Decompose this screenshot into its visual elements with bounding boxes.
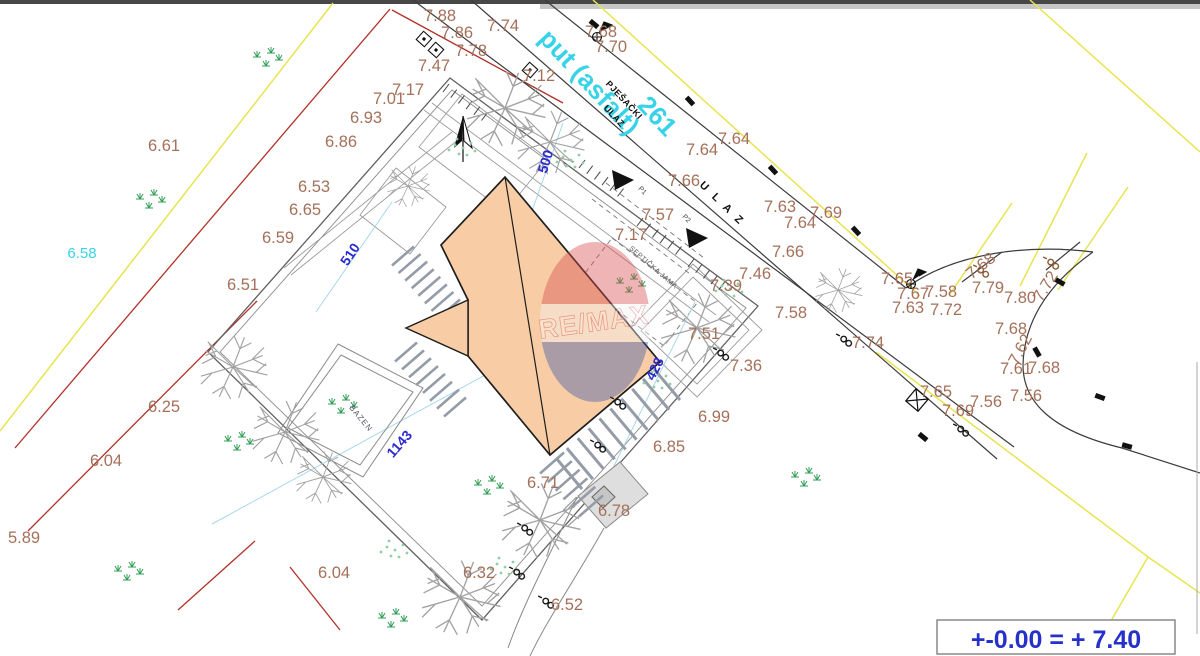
tree-icon — [253, 401, 320, 464]
grass-tuft-icon — [805, 467, 813, 473]
map-label: 6.85 — [653, 438, 685, 456]
shrub-dot-icon — [512, 561, 515, 564]
shaft-box-icon — [416, 31, 432, 47]
map-label: 7.56 — [970, 393, 1002, 411]
map-label: 7.66 — [668, 172, 700, 190]
grass-tuft-icon — [328, 398, 336, 404]
grass-tuft-icon — [238, 431, 246, 437]
map-label: 7.64 — [784, 214, 816, 232]
grass-tuft-icon — [136, 193, 144, 199]
map-label: 7.74 — [487, 17, 519, 35]
grass-tuft-icon — [800, 480, 808, 486]
map-label: 6.53 — [298, 178, 330, 196]
utility-pole-icon — [835, 331, 853, 347]
map-label: 6.71 — [527, 474, 559, 492]
map-label: 6.65 — [289, 201, 321, 219]
grass-tuft-icon — [114, 565, 122, 571]
shrub-dot-icon — [454, 144, 457, 147]
culvert-marker-icon — [918, 432, 929, 442]
shrub-dot-icon — [643, 382, 646, 385]
map-label: 7.51 — [688, 325, 720, 343]
map-label: 6.04 — [318, 564, 350, 582]
shrub-dot-icon — [380, 551, 383, 554]
shrub-dot-icon — [448, 149, 451, 152]
map-label: 7.63 — [892, 299, 924, 317]
map-label: 7.79 — [972, 279, 1004, 297]
map-label: 6.86 — [325, 133, 357, 151]
map-label: 7.74 — [852, 334, 884, 352]
shrub-dot-icon — [661, 387, 664, 390]
map-label: 6.25 — [148, 398, 180, 416]
map-label: 7.12 — [523, 67, 555, 85]
map-label: P1 — [637, 185, 648, 196]
grass-tuft-icon — [158, 196, 166, 202]
grass-tuft-icon — [262, 60, 270, 66]
shrub-dot-icon — [462, 147, 465, 150]
map-label: 5.89 — [8, 529, 40, 547]
grass-tuft-icon — [488, 475, 496, 481]
shrub-dot-icon — [500, 572, 503, 575]
culvert-marker-icon — [1032, 346, 1041, 357]
grass-tuft-icon — [224, 435, 232, 441]
map-label: 6.04 — [90, 452, 122, 470]
map-label: 7.57 — [642, 206, 674, 224]
shrub-dot-icon — [398, 556, 401, 559]
fence-tick — [579, 160, 585, 168]
shrub-dot-icon — [564, 150, 567, 153]
grass-tuft-icon — [474, 479, 482, 485]
shrub-dot-icon — [388, 540, 391, 543]
grass-tuft-icon — [392, 608, 400, 614]
map-label: 7.86 — [441, 24, 473, 42]
map-label: 7.36 — [730, 357, 762, 375]
map-label: 7.64 — [718, 130, 750, 148]
map-label: 510 — [337, 240, 363, 268]
shrub-dot-icon — [562, 156, 565, 159]
grass-tuft-icon — [233, 444, 241, 450]
shrub-dot-icon — [402, 544, 405, 547]
grass-tuft-icon — [145, 202, 153, 208]
map-label: 6.59 — [262, 229, 294, 247]
shrub-dot-icon — [386, 546, 389, 549]
shrub-dot-icon — [406, 552, 409, 555]
shrub-dot-icon — [474, 150, 477, 153]
fence-tick — [587, 166, 593, 174]
shrub-dot-icon — [394, 549, 397, 552]
map-label: 6.32 — [463, 564, 495, 582]
map-label: 7.72 — [1030, 268, 1062, 305]
culvert-marker-icon — [1094, 393, 1105, 401]
grass-tuft-icon — [253, 51, 261, 57]
shrub-dot-icon — [508, 573, 511, 576]
culvert-marker-icon — [685, 96, 695, 107]
map-label: 7.64 — [686, 141, 718, 159]
map-label: 7.46 — [739, 265, 771, 283]
shrub-dot-icon — [665, 375, 668, 378]
fence-tick — [594, 171, 600, 179]
utility-pole-icon — [1042, 254, 1060, 270]
tree-icon — [201, 336, 268, 399]
shrub-dot-icon — [496, 563, 499, 566]
level-note-box: +-0.00 = + 7.40 — [937, 620, 1175, 654]
site-plan: 7.887.867.787.747.477.177.016.936.866.61… — [0, 0, 1200, 656]
grass-tuft-icon — [128, 561, 136, 567]
map-label: BAZEN — [347, 403, 374, 433]
shrub-dot-icon — [470, 142, 473, 145]
map-label: 7.65 — [920, 383, 952, 401]
grass-tuft-icon — [246, 438, 254, 444]
grass-tuft-icon — [337, 407, 345, 413]
map-label: 7.56 — [1010, 387, 1042, 405]
shrub-dot-icon — [574, 166, 577, 169]
grass-tuft-icon — [136, 568, 144, 574]
map-label: 7.58 — [775, 304, 807, 322]
shrub-dot-icon — [653, 386, 656, 389]
map-label: 7.68 — [1028, 359, 1060, 377]
map-label: 7.78 — [455, 42, 487, 60]
level-note-text: +-0.00 = + 7.40 — [971, 626, 1141, 654]
shrub-dot-icon — [570, 159, 573, 162]
shrub-dot-icon — [456, 138, 459, 141]
grass-tuft-icon — [387, 621, 395, 627]
map-label: 500 — [534, 148, 556, 175]
shrub-dot-icon — [458, 153, 461, 156]
shrub-dot-icon — [733, 295, 736, 298]
map-label: 7.01 — [373, 90, 405, 108]
tree-icon — [387, 166, 430, 207]
grass-tuft-icon — [496, 482, 504, 488]
utility-pole-icon — [952, 421, 970, 437]
grass-tuft-icon — [378, 612, 386, 618]
shrub-dot-icon — [669, 383, 672, 386]
map-label: 7.72 — [930, 301, 962, 319]
map-label: 6.52 — [551, 596, 583, 614]
grass-tuft-icon — [342, 394, 350, 400]
map-label: 6.93 — [350, 109, 382, 127]
map-label: P2 — [681, 213, 692, 224]
grass-tuft-icon — [483, 488, 491, 494]
map-label: 1143 — [383, 427, 415, 461]
map-label: 6.58 — [67, 245, 96, 262]
grass-tuft-icon — [791, 471, 799, 477]
shrub-dot-icon — [556, 161, 559, 164]
map-label: 7.69 — [942, 402, 974, 420]
shrub-dot-icon — [504, 566, 507, 569]
site-plan-canvas: 7.887.867.787.747.477.177.016.936.866.61… — [0, 0, 1200, 656]
shrub-dot-icon — [466, 154, 469, 157]
map-label: 7.88 — [424, 7, 456, 25]
tree-icon — [297, 451, 352, 503]
shrub-dot-icon — [566, 165, 569, 168]
map-label: 6.78 — [598, 502, 630, 520]
map-label: 7.70 — [595, 38, 627, 56]
map-label: 6.99 — [698, 408, 730, 426]
grass-tuft-icon — [123, 574, 131, 580]
grass-tuft-icon — [813, 474, 821, 480]
grass-tuft-icon — [150, 189, 158, 195]
grass-tuft-icon — [267, 47, 275, 53]
map-label: 7.17 — [615, 226, 647, 244]
shrub-dot-icon — [578, 154, 581, 157]
grass-tuft-icon — [400, 615, 408, 621]
shrub-dot-icon — [498, 557, 501, 560]
shrub-dot-icon — [582, 162, 585, 165]
map-label: 6.51 — [227, 276, 259, 294]
shaft-box-icon — [428, 42, 444, 58]
map-label: 7.39 — [710, 277, 742, 295]
map-label: 7.58 — [925, 283, 957, 301]
grass-tuft-icon — [275, 54, 283, 60]
map-label: 7.47 — [418, 57, 450, 75]
map-label: 7.66 — [772, 243, 804, 261]
map-label: 6.61 — [148, 137, 180, 155]
shrub-dot-icon — [390, 555, 393, 558]
